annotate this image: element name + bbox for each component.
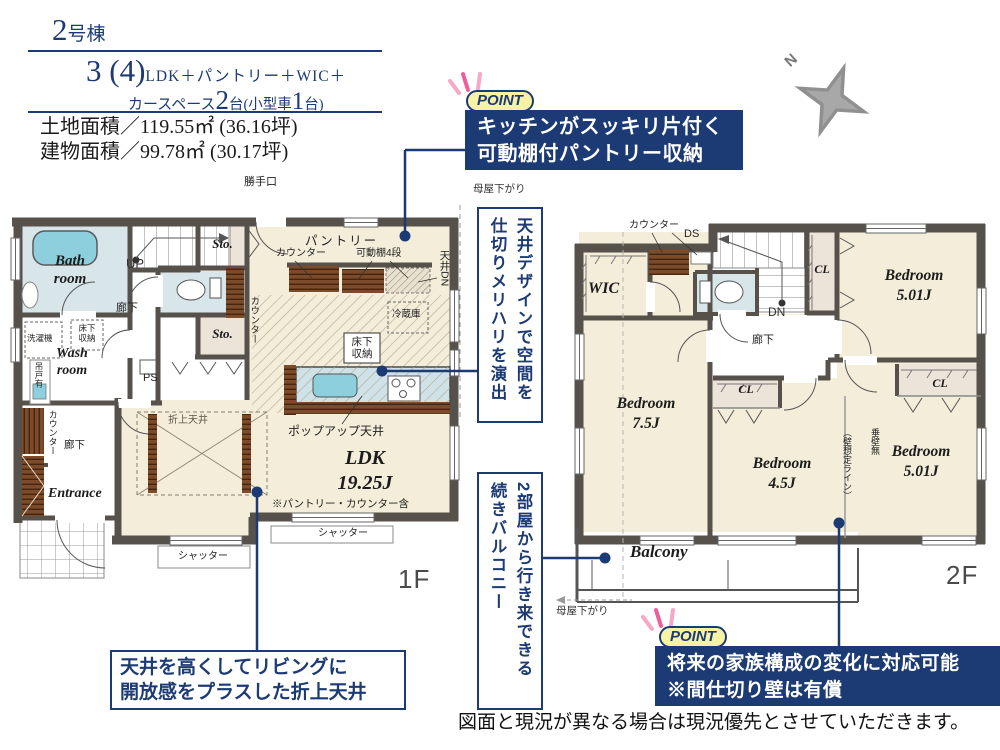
room-sto-2: Sto. — [198, 326, 247, 341]
label-dn: DN — [768, 305, 785, 319]
stairs-2f — [713, 230, 805, 268]
label-moya-top: 母屋下がり — [473, 183, 526, 195]
compass-rose — [794, 62, 869, 137]
floorplan-flyer: 2 号棟 3 (4) LDK＋パントリー＋WIC＋ カースペース 2 台(小型車… — [0, 0, 1000, 750]
room-bedroom-c: Bedroom 4.5J — [736, 454, 828, 494]
unit-title: 2 号棟 — [52, 12, 106, 49]
point1-line1: キッチンがスッキリ片付く — [477, 114, 733, 141]
label-cl-tall: CL — [808, 262, 836, 276]
room-bedroom-a: Bedroom 5.01J — [868, 266, 960, 306]
room-balcony: Balcony — [630, 542, 688, 562]
label-shutter-right: シャッター — [318, 528, 368, 540]
callout-ceiling-col1: 天井デザインで空間を — [510, 217, 536, 413]
toilet-2f — [715, 281, 743, 303]
room-wash: Wash room — [40, 346, 104, 379]
room-sto-1: Sto. — [198, 236, 247, 251]
label-popup-ceiling: ポップアップ天井 — [288, 424, 384, 438]
label-hallway-entrance: 廊下 — [64, 439, 85, 451]
unit-number: 2 — [52, 12, 68, 49]
point-badge-1: POINT — [466, 90, 534, 112]
label-ds: DS — [684, 228, 699, 241]
callout-balcony: 2部屋から行き来できる 続きバルコニー — [477, 472, 543, 710]
room-bath: Bath room — [38, 253, 102, 288]
label-coffered: 折上天井 — [168, 415, 208, 427]
label-hallway-2f: 廊下 — [752, 334, 774, 347]
label-back-door: 勝手口 — [244, 176, 277, 189]
point2-line2: ※間仕切り壁は有償 — [667, 677, 995, 704]
label-fridge: 冷蔵庫 — [392, 309, 421, 320]
label-washer: 洗濯機 — [27, 333, 53, 343]
label-ps: PS — [143, 372, 158, 385]
plan-rest: LDK＋パントリー＋WIC＋ — [145, 68, 346, 86]
toilet-1f — [177, 280, 205, 300]
label-ceiling-dn: 天井DN — [438, 250, 450, 306]
label-counter-pantry: カウンター — [276, 248, 326, 260]
label-shelf: 可動棚4段 — [356, 248, 402, 260]
callout-ceiling-design: 天井デザインで空間を 仕切りメリハリを演出 — [477, 207, 543, 423]
floor2-tag: 2F — [946, 560, 978, 591]
header-rule-bottom — [28, 111, 382, 113]
callout-balcony-col1: 2部屋から行き来できる — [510, 482, 536, 700]
land-area: 土地面積／119.55㎡ (36.16坪) — [40, 116, 298, 140]
label-counter-entrance: カウンター — [47, 410, 58, 466]
building-area: 建物面積／99.78㎡ (30.17坪) — [40, 141, 288, 165]
callout-coffered: 天井を高くしてリビングに 開放感をプラスした折上天井 — [110, 650, 406, 710]
floor1-tag: 1F — [398, 564, 430, 595]
callout-coffered-line2: 開放感をプラスした折上天井 — [120, 680, 396, 705]
shoe-cabinet — [22, 456, 44, 516]
header-rule-top — [28, 50, 382, 52]
callout-balcony-col2: 続きバルコニー — [484, 482, 510, 700]
room-ldk: LDK 19.25J — [295, 446, 435, 496]
unit-suffix: 号棟 — [68, 24, 106, 46]
label-wall-note-a: 垂壁無 — [868, 428, 882, 528]
label-underfloor-wash: 床下 収納 — [72, 323, 102, 343]
label-shutter-left: シャッター — [178, 551, 228, 563]
kitchen-sink — [313, 374, 357, 397]
room-wic: WIC — [588, 280, 619, 299]
room-entrance: Entrance — [48, 486, 102, 503]
room-bedroom-b: Bedroom 7.5J — [600, 394, 692, 434]
label-cl-mid: CL — [716, 382, 776, 396]
point-callout-2: 将来の家族構成の変化に対応可能 ※間仕切り壁は有償 — [655, 646, 1000, 706]
callout-ceiling-col2: 仕切りメリハリを演出 — [484, 217, 510, 413]
label-counter-kitchen: カウンター — [248, 296, 259, 354]
callout-coffered-line1: 天井を高くしてリビングに — [120, 655, 396, 680]
label-wall-note-b: （壁想定ライン） — [840, 428, 854, 528]
point-callout-1: キッチンがスッキリ片付く 可動棚付パントリー収納 — [465, 110, 743, 170]
label-counter-2f: カウンター — [629, 220, 679, 232]
label-wall-note: 垂壁無 （壁想定ライン） — [826, 428, 896, 528]
label-underfloor-kitchen: 床下 収納 — [344, 336, 380, 361]
disclaimer: 図面と現況が異なる場合は現況優先とさせていただきます。 — [458, 712, 969, 734]
label-up: UP — [126, 256, 144, 271]
label-hanging-door: 吊戸有 — [34, 362, 44, 404]
label-hallway-1f: 廊下 — [116, 302, 138, 315]
point-badge-2: POINT — [659, 626, 727, 648]
label-cl-right: CL — [900, 376, 980, 390]
label-moya-bottom: 母屋下がり — [556, 605, 609, 617]
label-pantry: パントリー — [305, 234, 378, 249]
point1-line2: 可動棚付パントリー収納 — [477, 141, 733, 168]
point2-line1: 将来の家族構成の変化に対応可能 — [667, 650, 995, 677]
label-ldk-note: ※パントリー・カウンター含 — [272, 498, 409, 510]
